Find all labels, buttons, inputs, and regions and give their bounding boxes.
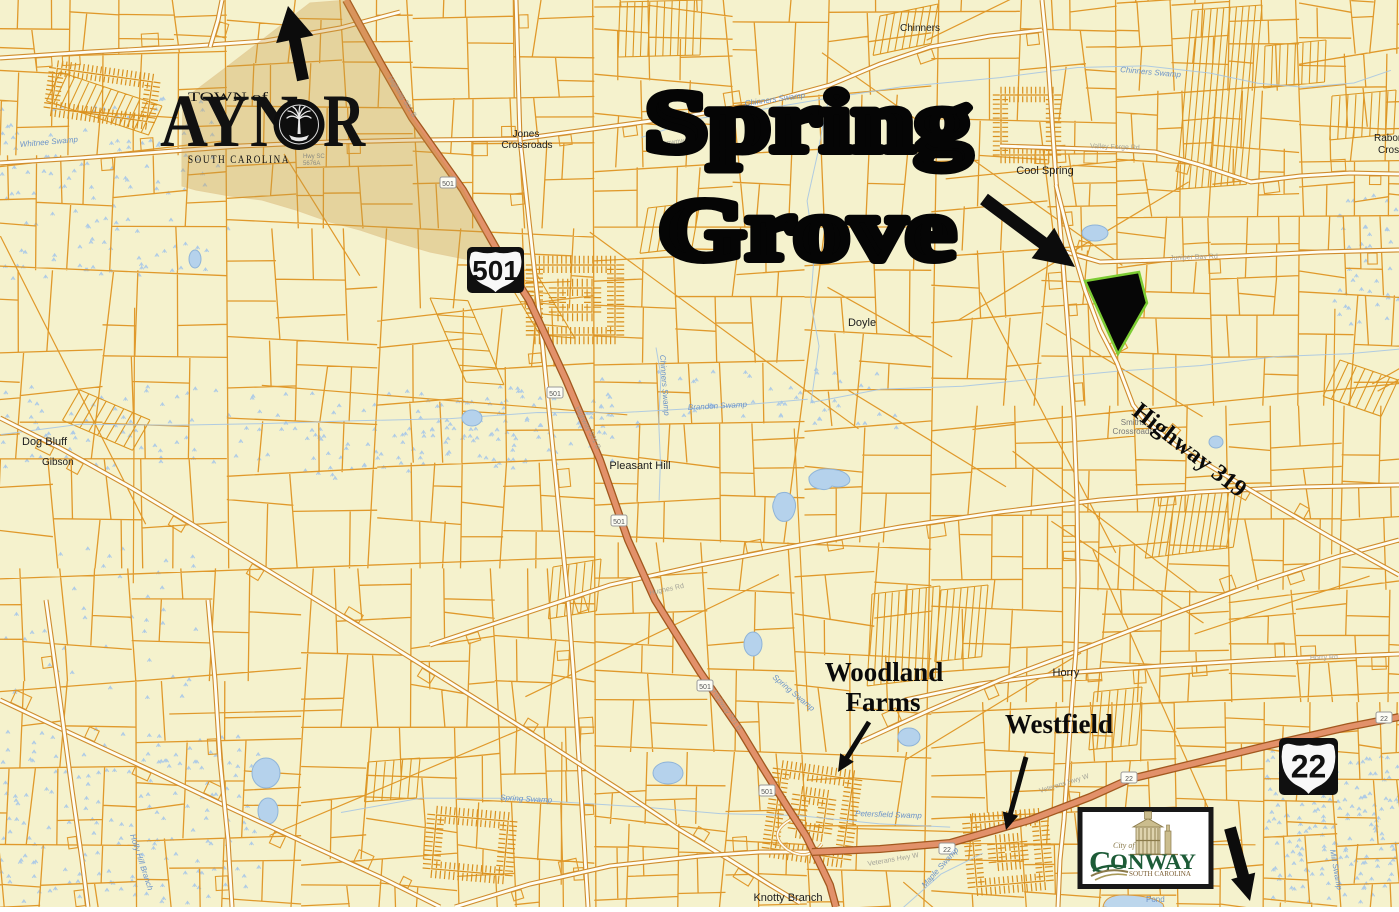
svg-text:Spring: Spring [645, 74, 971, 171]
svg-text:City of: City of [1113, 841, 1136, 850]
svg-text:Pleasant Hill: Pleasant Hill [609, 460, 670, 472]
svg-text:Pond: Pond [1146, 895, 1165, 904]
svg-text:Grove: Grove [659, 182, 956, 279]
svg-text:SOUTH CAROLINA: SOUTH CAROLINA [188, 154, 290, 166]
svg-text:Crossroads: Crossroads [501, 140, 552, 151]
svg-text:501: 501 [472, 255, 519, 286]
svg-text:Horry: Horry [1053, 667, 1080, 679]
svg-text:Westfield: Westfield [1005, 709, 1113, 739]
svg-text:501: 501 [613, 519, 625, 526]
svg-text:22: 22 [1291, 749, 1327, 785]
svg-text:Farms: Farms [846, 687, 921, 717]
svg-text:R: R [323, 79, 366, 163]
svg-text:Rabon: Rabon [1374, 133, 1399, 144]
svg-text:Cool Spring: Cool Spring [1016, 165, 1073, 177]
svg-text:Woodland: Woodland [825, 657, 944, 687]
svg-text:5676A: 5676A [303, 161, 320, 167]
svg-text:Hwy SC: Hwy SC [303, 154, 325, 160]
svg-text:SOUTH CAROLINA: SOUTH CAROLINA [1129, 869, 1192, 878]
svg-text:501: 501 [442, 181, 454, 188]
svg-text:Chinners: Chinners [900, 23, 940, 34]
svg-text:Gibson: Gibson [42, 457, 74, 468]
svg-text:Knotty Branch: Knotty Branch [753, 892, 822, 904]
svg-text:Doyle: Doyle [848, 317, 876, 329]
svg-text:501: 501 [761, 789, 773, 796]
svg-text:501: 501 [699, 684, 711, 691]
svg-text:C: C [1089, 844, 1111, 879]
svg-text:Horry Rd: Horry Rd [1310, 654, 1338, 662]
svg-text:Jones: Jones [513, 129, 540, 140]
svg-text:501: 501 [549, 391, 561, 398]
svg-text:22: 22 [1380, 716, 1388, 723]
svg-text:Crossroa: Crossroa [1378, 145, 1399, 156]
svg-text:Dog Bluff: Dog Bluff [22, 436, 68, 448]
svg-text:22: 22 [1125, 776, 1133, 783]
